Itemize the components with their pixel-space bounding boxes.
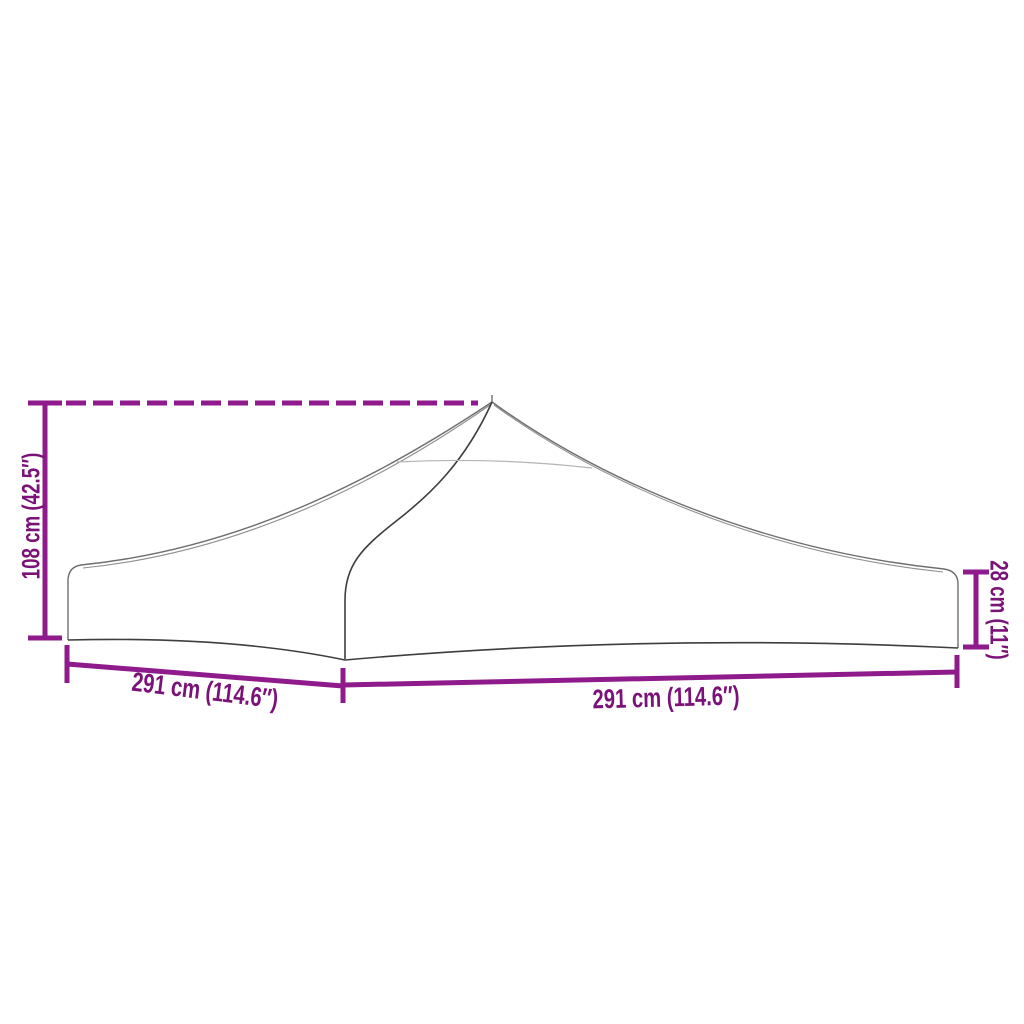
width-dimension-label: 291 cm (114.6″) <box>592 681 740 715</box>
depth-dimension: 291 cm (114.6″) <box>67 645 343 715</box>
canopy-left-ridge <box>68 402 492 640</box>
height-dimension-label: 108 cm (42.5″) <box>17 453 45 580</box>
valance-dimension-label: 28 cm (11″) <box>985 560 1013 660</box>
canopy-right-ridge-seam <box>494 405 943 572</box>
canopy-outline <box>68 395 958 660</box>
canopy-front-seam <box>345 402 492 659</box>
product-dimension-diagram: 108 cm (42.5″) 291 cm (114.6″) 291 cm (1… <box>0 0 1024 1024</box>
width-dimension: 291 cm (114.6″) <box>343 655 957 715</box>
canopy-right-ridge <box>492 402 958 648</box>
valance-height-dimension: 28 cm (11″) <box>963 560 1013 660</box>
canopy-back-edge <box>397 460 592 468</box>
canopy-bottom-hem <box>68 639 958 660</box>
canopy-left-ridge-seam <box>83 405 490 568</box>
gazebo-roof-dimension-drawing: 108 cm (42.5″) 291 cm (114.6″) 291 cm (1… <box>0 0 1024 1024</box>
height-dimension: 108 cm (42.5″) <box>17 403 478 638</box>
